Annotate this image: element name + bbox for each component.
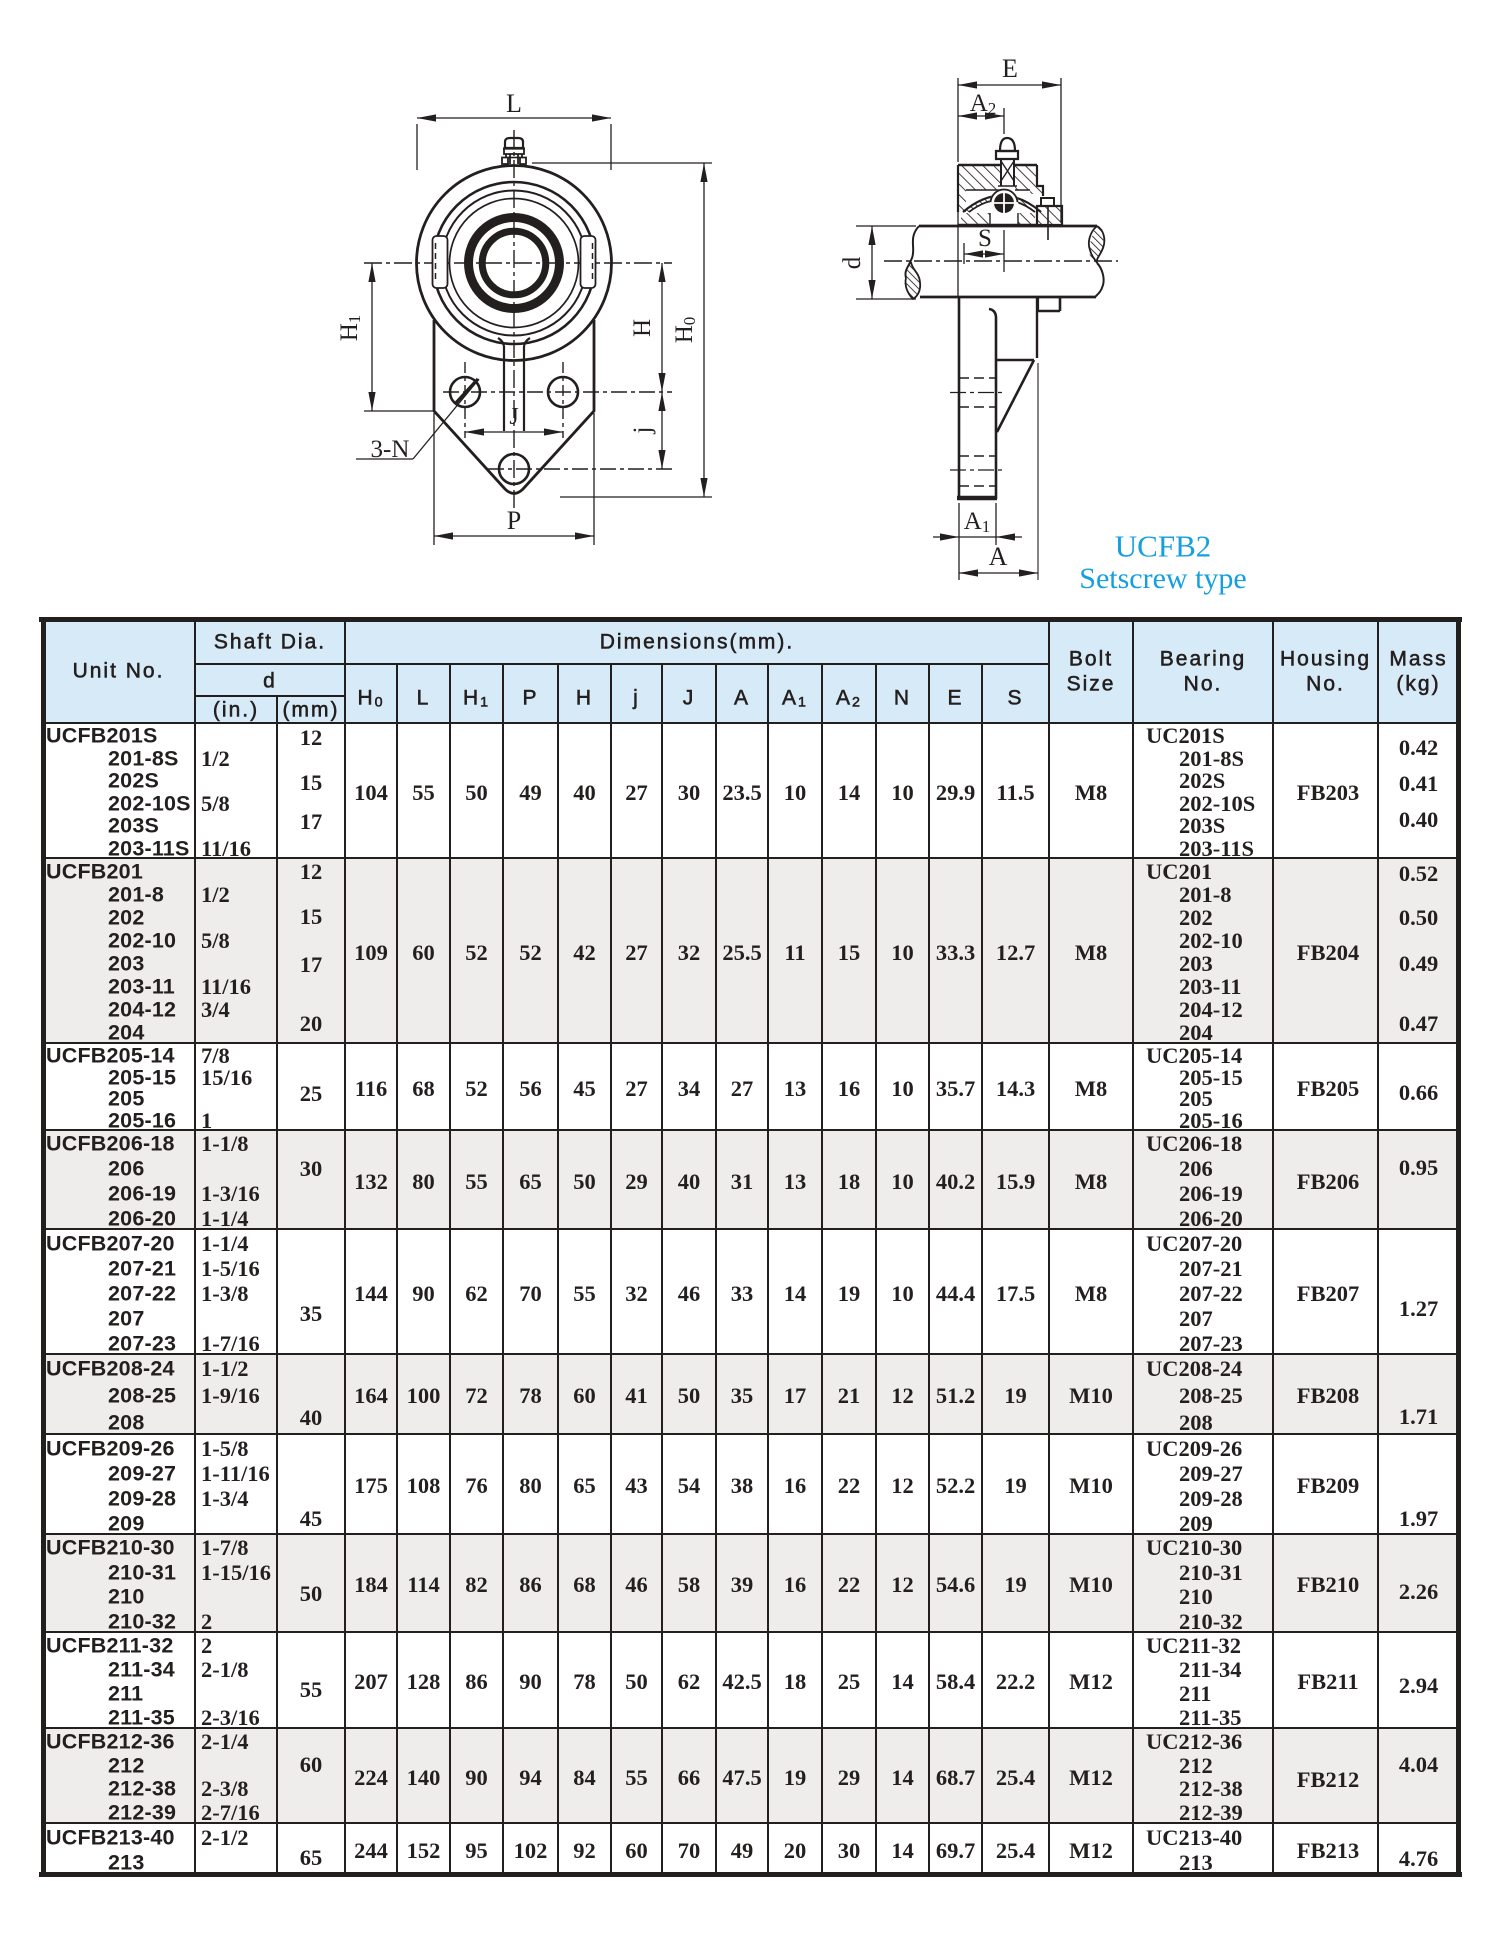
svg-text:d: d (839, 256, 866, 269)
svg-text:H0: H0 (671, 317, 699, 344)
svg-text:L: L (506, 89, 522, 118)
svg-text:A1: A1 (964, 508, 991, 536)
svg-text:H: H (629, 319, 656, 337)
svg-text:3-N: 3-N (371, 436, 410, 463)
svg-text:H1: H1 (336, 315, 364, 342)
svg-text:P: P (507, 506, 521, 535)
svg-text:j: j (629, 427, 656, 435)
svg-text:S: S (978, 225, 992, 252)
svg-text:A2: A2 (970, 90, 997, 118)
svg-text:A: A (989, 542, 1008, 571)
svg-text:E: E (1002, 54, 1018, 83)
svg-text:J: J (509, 404, 518, 430)
